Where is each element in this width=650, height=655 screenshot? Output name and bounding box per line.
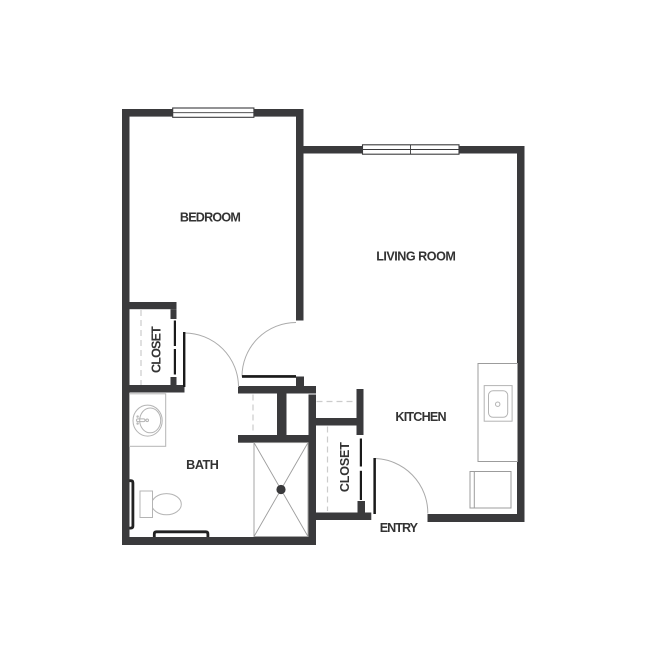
svg-text:CLOSET: CLOSET xyxy=(149,326,163,373)
svg-text:BATH: BATH xyxy=(186,458,219,472)
svg-text:BEDROOM: BEDROOM xyxy=(180,211,240,225)
svg-text:LIVING ROOM: LIVING ROOM xyxy=(376,250,455,264)
svg-text:ENTRY: ENTRY xyxy=(380,521,419,535)
svg-text:CLOSET: CLOSET xyxy=(338,442,352,492)
svg-text:KITCHEN: KITCHEN xyxy=(395,410,446,424)
